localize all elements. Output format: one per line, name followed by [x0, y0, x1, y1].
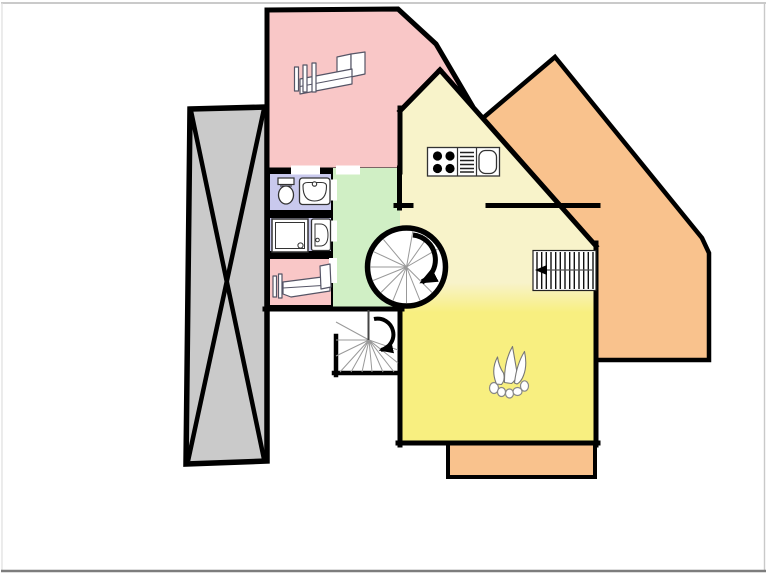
single-bed-post-2	[279, 274, 283, 298]
single-bed-footboard-panel	[320, 264, 331, 289]
shower-drain	[298, 243, 303, 248]
door-gap-bedroom-hallway	[336, 166, 360, 175]
floor-plan-slide	[0, 0, 767, 575]
double-bed-post-1	[295, 67, 299, 91]
stove-burner-1	[433, 151, 442, 160]
door-gap-bedroom-bath1	[291, 166, 320, 175]
double-bed-post-3	[312, 63, 316, 92]
stove-burner-3	[433, 164, 442, 173]
small-basin-drain	[316, 238, 320, 242]
fireplace-stone-2	[498, 388, 506, 397]
stove-burner-4	[445, 164, 454, 173]
washbasin-faucet	[312, 182, 316, 186]
double-bed-post-2	[303, 65, 307, 92]
single-bed-post-1	[273, 276, 277, 297]
double-bed-footboard-panel-2	[351, 52, 365, 77]
floorplan-svg	[0, 0, 767, 575]
kitchen-sink-basin	[479, 151, 497, 174]
toilet-tank	[278, 178, 294, 185]
stove-burner-2	[445, 151, 454, 160]
fireplace-stone-5	[521, 381, 529, 391]
fireplace-stone-3	[506, 389, 514, 398]
small-basin-bowl	[315, 224, 328, 246]
terrace-deck	[448, 440, 595, 477]
toilet-bowl	[279, 186, 294, 204]
